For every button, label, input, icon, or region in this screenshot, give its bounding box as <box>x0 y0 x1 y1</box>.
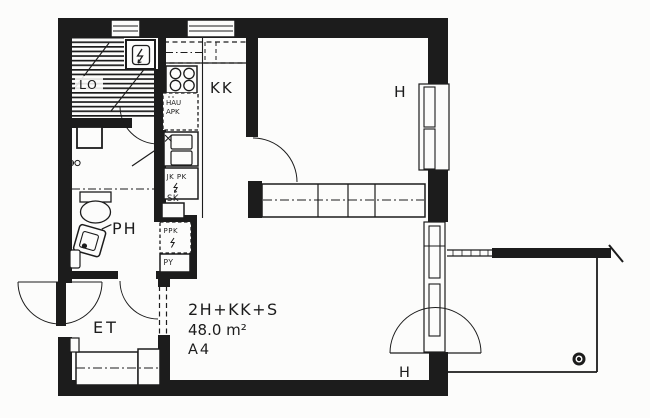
bedroom-label: H <box>394 83 406 101</box>
washbasin-icon <box>70 250 80 268</box>
sauna-label: LO <box>79 77 98 92</box>
dishwasher-label-line2: APK <box>166 108 180 116</box>
washing-machine-label: PPK <box>164 227 179 235</box>
linen-cupboard: PY <box>160 254 190 272</box>
vent-shaft-icon <box>187 20 235 37</box>
apartment-type-label: 2H+KK+S <box>188 300 279 319</box>
fridge-freezer-label: JK PK <box>166 173 187 181</box>
laundry-nook: PPK PY <box>160 222 191 272</box>
sauna-wall-stub <box>77 127 102 148</box>
wall-entrance-living-stub <box>158 271 170 287</box>
sink-icon <box>164 132 198 166</box>
living-room-window-icon <box>424 222 445 352</box>
sauna-heater-icon <box>126 40 155 69</box>
wall-wardrobe-stub <box>248 181 262 218</box>
front-door-leaf <box>56 282 66 326</box>
dishwasher-reservation: HAU APK <box>163 93 198 130</box>
living-room-label: H <box>399 365 410 381</box>
bathroom-label: PH <box>112 219 138 238</box>
washing-machine-reservation: PPK <box>160 222 191 253</box>
floor-plan-page: LO HAU APK <box>0 0 650 418</box>
linen-cupboard-label: PY <box>164 258 174 267</box>
wardrobe-row <box>262 184 425 217</box>
apartment-area-label: 48.0 m² <box>188 321 247 339</box>
wall-right-upper <box>428 38 448 84</box>
wall-left-upper <box>58 18 72 283</box>
wall-right-middle <box>428 170 448 222</box>
wall-right-lower <box>429 352 448 384</box>
entrance-label: ET <box>93 318 119 337</box>
vent-shaft-icon <box>111 20 140 37</box>
floor-plan-drawing: LO HAU APK <box>0 0 650 418</box>
balcony-partition-wall <box>492 248 611 258</box>
dishwasher-label-line1: HAU <box>166 99 181 107</box>
kitchenette-label: KK <box>210 79 234 97</box>
stove-icon <box>166 66 197 93</box>
toilet-icon <box>80 192 111 223</box>
floor-drain-icon <box>573 353 586 366</box>
bedroom-window-icon <box>419 84 449 170</box>
apartment-number-label: A4 <box>188 342 211 358</box>
wall-bathroom-entrance-left <box>58 271 118 279</box>
